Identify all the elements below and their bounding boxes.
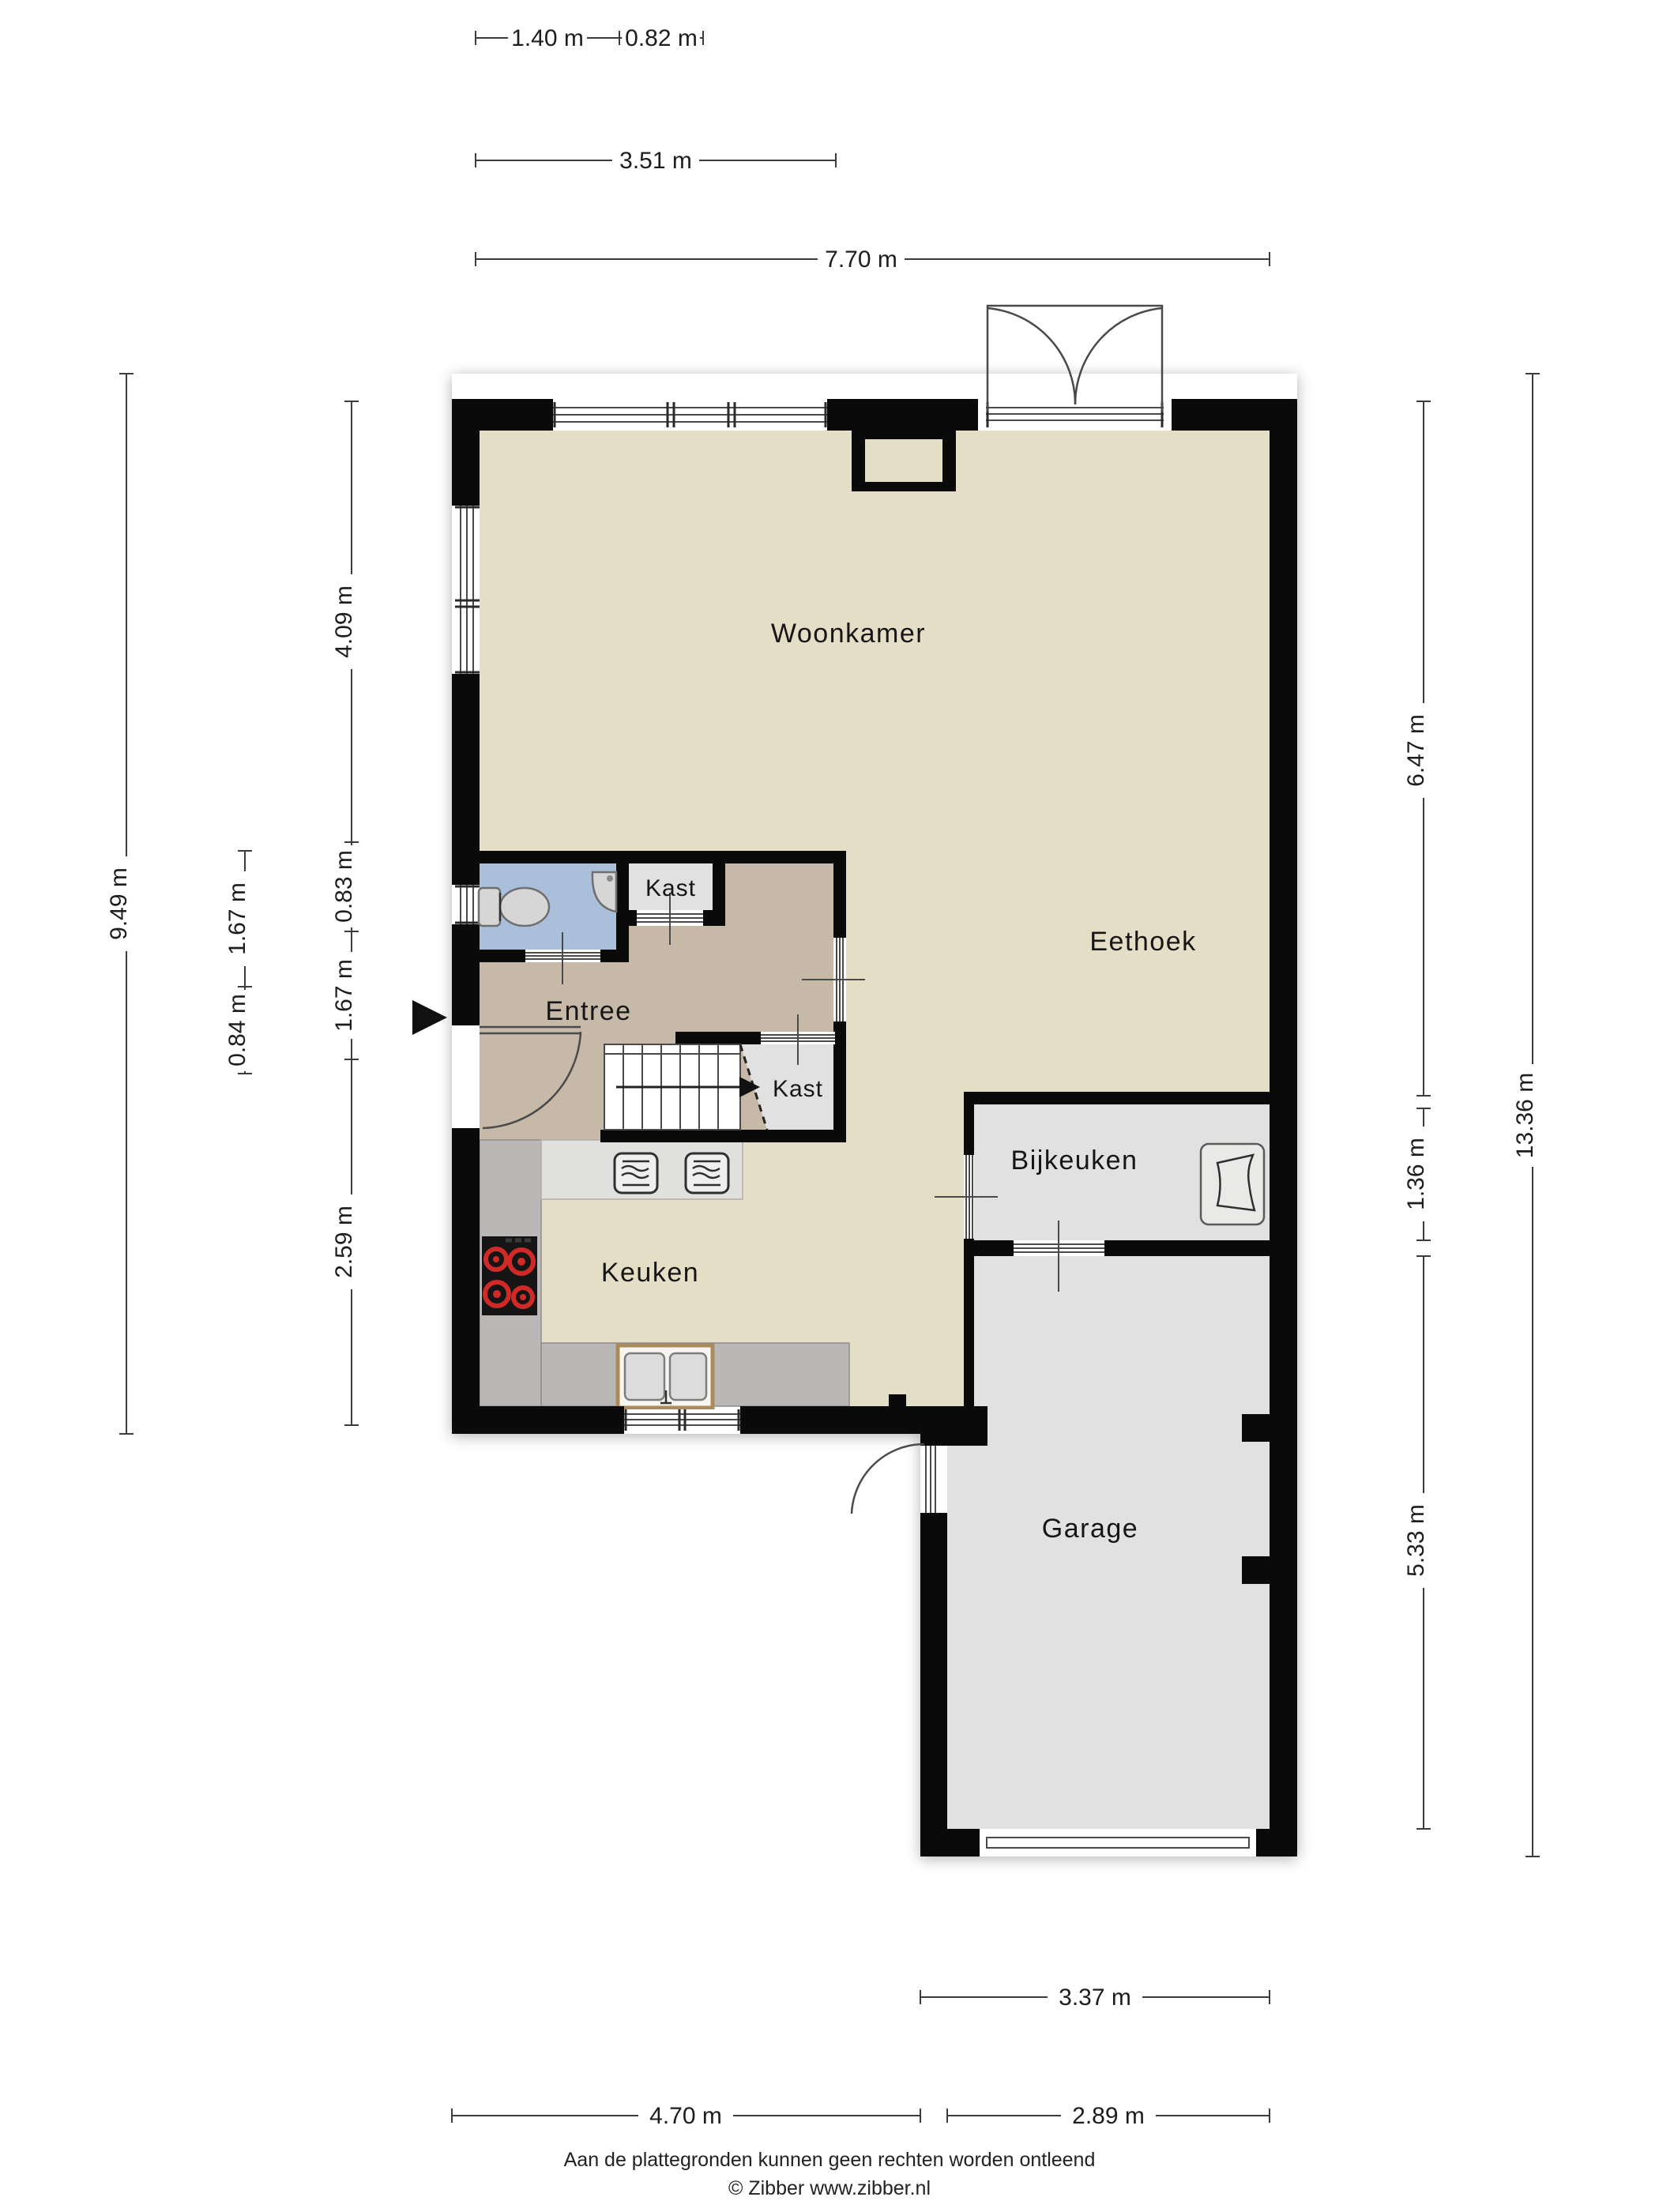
footer-disclaimer: Aan de plattegronden kunnen geen rechten… — [564, 2149, 1096, 2171]
french-doors — [986, 306, 1164, 427]
room-label-eethoek: Eethoek — [1089, 927, 1196, 957]
footer: Aan de plattegronden kunnen geen rechten… — [564, 2149, 1096, 2199]
room-label-keuken: Keuken — [601, 1258, 699, 1288]
dim-label: 7.70 m — [825, 246, 897, 273]
window-kitchen — [624, 1409, 740, 1431]
kitchen-sink-icon — [618, 1345, 713, 1408]
room-label-woonkamer: Woonkamer — [771, 619, 926, 649]
room-label-garage: Garage — [1042, 1514, 1138, 1544]
dim-label: 1.67 m — [224, 882, 250, 955]
footer-credit: © Zibber www.zibber.nl — [728, 2177, 931, 2199]
dim-label: 0.82 m — [625, 25, 698, 51]
dim-label: 4.09 m — [331, 585, 357, 658]
entrance-arrow-icon — [412, 1000, 447, 1035]
oven-icon — [615, 1153, 657, 1193]
dim-label: 5.33 m — [1403, 1504, 1429, 1577]
dim-label: 1.40 m — [511, 25, 584, 51]
dim-label: 6.47 m — [1403, 714, 1429, 787]
room-label-kast1: Kast — [645, 875, 696, 901]
toilet-icon — [479, 888, 549, 926]
room-label-entree: Entree — [545, 996, 631, 1026]
room-label-kast2: Kast — [773, 1076, 823, 1102]
dim-label: 0.84 m — [224, 994, 250, 1066]
dim-label: 0.83 m — [331, 850, 357, 923]
dim-label: 2.89 m — [1072, 2103, 1145, 2129]
room-label-bijkeuken: Bijkeuken — [1011, 1145, 1138, 1176]
dim-label: 4.70 m — [649, 2103, 722, 2129]
dim-label: 3.51 m — [619, 148, 692, 174]
garage-side-door — [852, 1444, 947, 1514]
window-left-living — [455, 506, 480, 674]
window-toilet — [455, 885, 480, 924]
floor-plan-drawing: Woonkamer Eethoek Entree Keuken Bijkeuke… — [0, 0, 1659, 2212]
dim-label: 2.59 m — [331, 1206, 357, 1278]
floor-plan-page: Woonkamer Eethoek Entree Keuken Bijkeuke… — [0, 0, 1659, 2212]
dim-label: 13.36 m — [1512, 1073, 1538, 1158]
dim-label: 1.67 m — [331, 959, 357, 1032]
garage-door — [980, 1829, 1256, 1856]
utility-sink-icon — [1201, 1144, 1264, 1224]
oven-icon — [686, 1153, 728, 1193]
dim-label: 1.36 m — [1403, 1138, 1429, 1210]
dim-label: 9.49 m — [106, 867, 132, 940]
dim-label: 3.37 m — [1059, 1984, 1131, 2011]
cooktop-icon — [482, 1236, 537, 1315]
window-top-living — [553, 402, 827, 427]
